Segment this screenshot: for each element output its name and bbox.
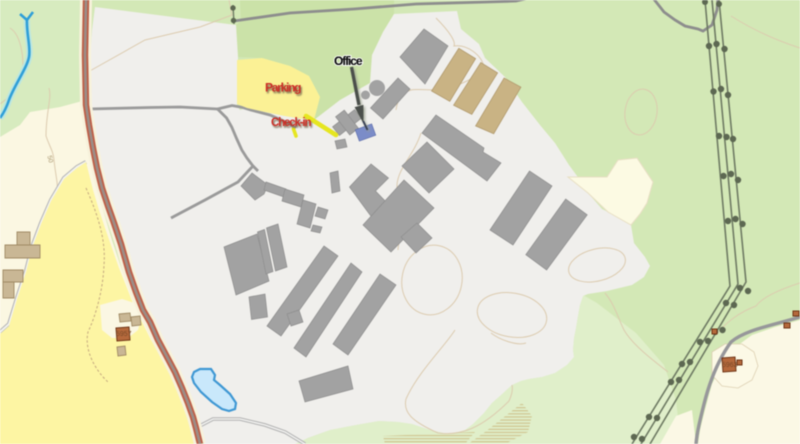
svg-text:Parking: Parking	[265, 81, 302, 95]
svg-text:5963: 5963	[722, 362, 738, 369]
svg-text:Check-in: Check-in	[271, 117, 312, 129]
svg-text:Office: Office	[334, 54, 363, 68]
svg-text:5957: 5957	[116, 331, 132, 338]
